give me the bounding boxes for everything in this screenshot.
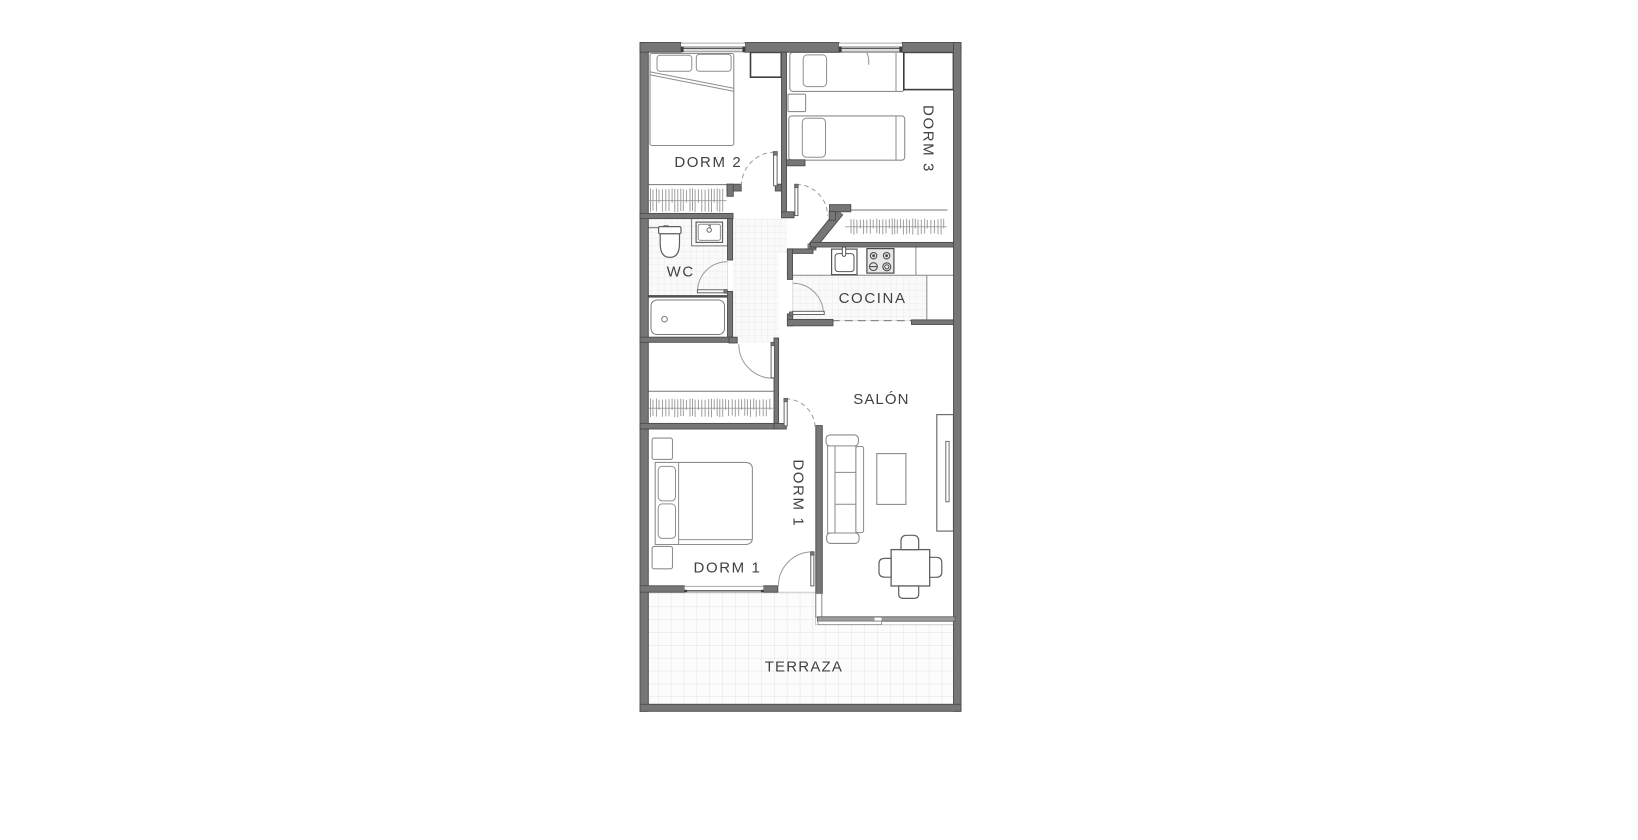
svg-text:DORM 3: DORM 3 — [920, 105, 937, 173]
svg-text:COCINA: COCINA — [839, 290, 907, 307]
svg-text:DORM 1: DORM 1 — [790, 459, 807, 527]
svg-text:DORM 1: DORM 1 — [694, 559, 762, 576]
svg-text:TERRAZA: TERRAZA — [765, 659, 843, 676]
svg-text:DORM 2: DORM 2 — [674, 154, 742, 171]
svg-text:WC: WC — [667, 263, 695, 280]
svg-text:SALÓN: SALÓN — [853, 391, 909, 408]
